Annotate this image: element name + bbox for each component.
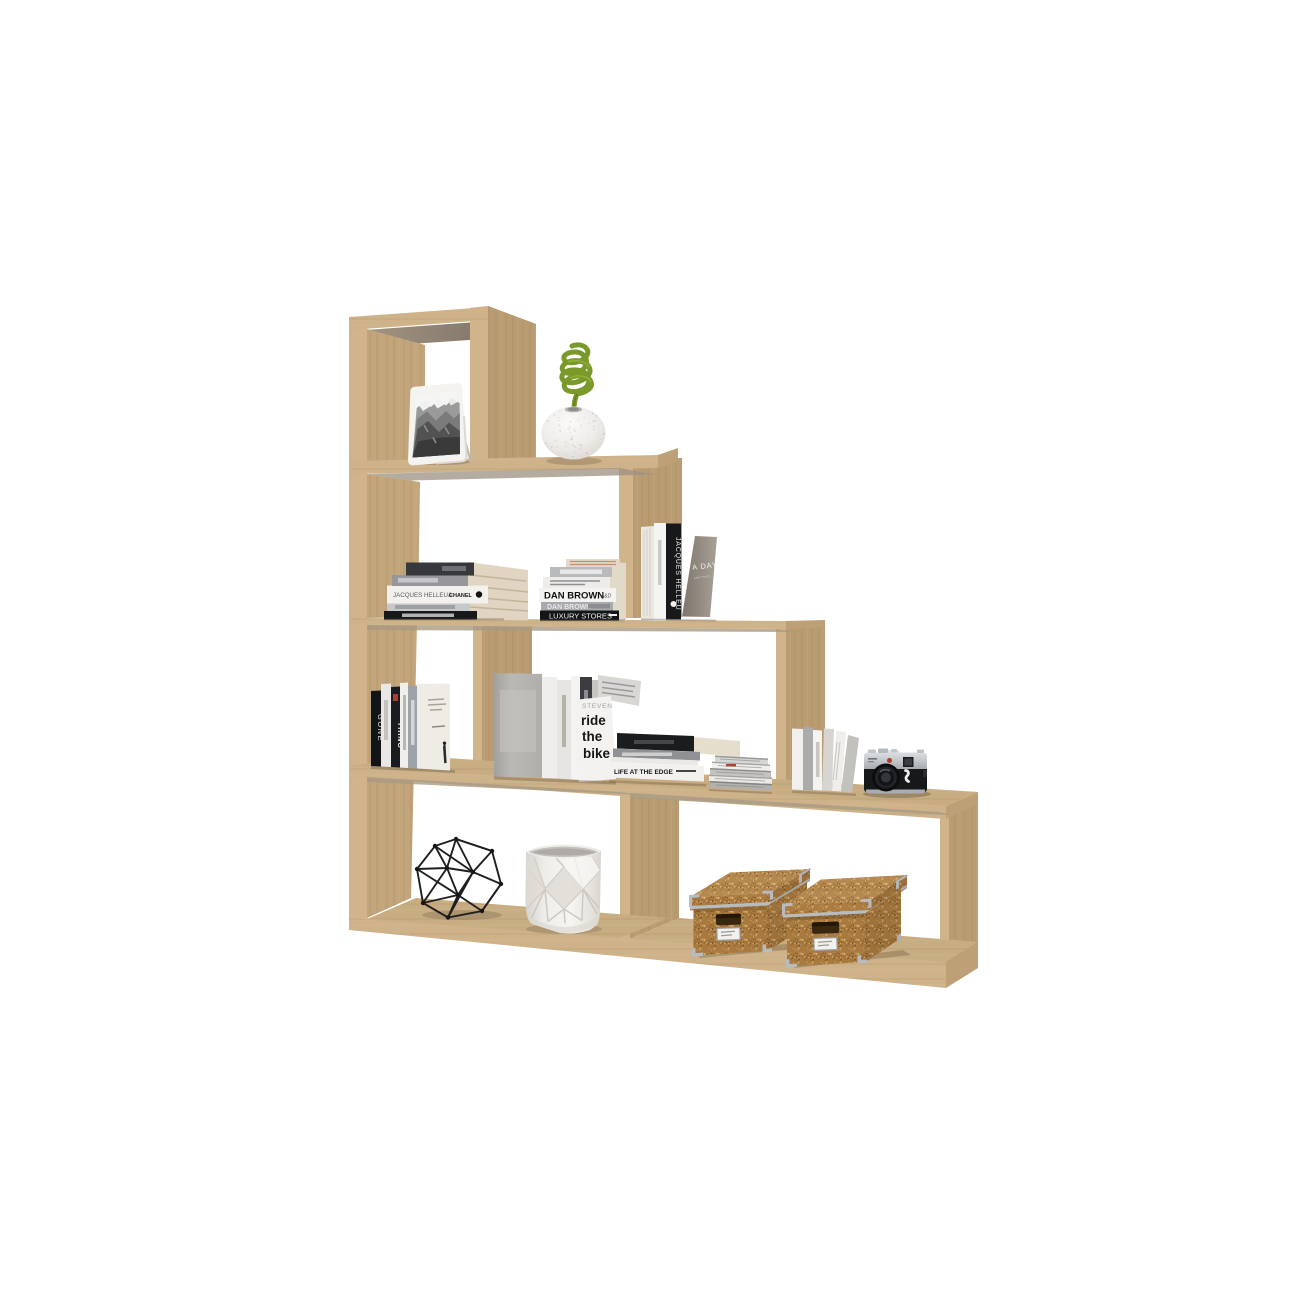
svg-text:LIFE AT THE EDGE: LIFE AT THE EDGE bbox=[614, 769, 674, 776]
svg-text:DAN BROWN: DAN BROWN bbox=[547, 604, 591, 611]
svg-text:A&D: A&D bbox=[601, 594, 612, 600]
svg-text:JACQUES HELLEU: JACQUES HELLEU bbox=[674, 537, 681, 610]
svg-text:LUXURY STORES: LUXURY STORES bbox=[549, 611, 612, 620]
svg-text:JACQUES HELLEU&: JACQUES HELLEU& bbox=[393, 592, 453, 599]
svg-text:CHANEL: CHANEL bbox=[449, 593, 473, 599]
svg-text:bike: bike bbox=[583, 746, 611, 761]
svg-text:the: the bbox=[582, 729, 603, 744]
svg-text:DAN BROWN: DAN BROWN bbox=[544, 591, 604, 602]
svg-text:STEVEN: STEVEN bbox=[582, 703, 613, 710]
svg-text:ride: ride bbox=[581, 713, 606, 728]
